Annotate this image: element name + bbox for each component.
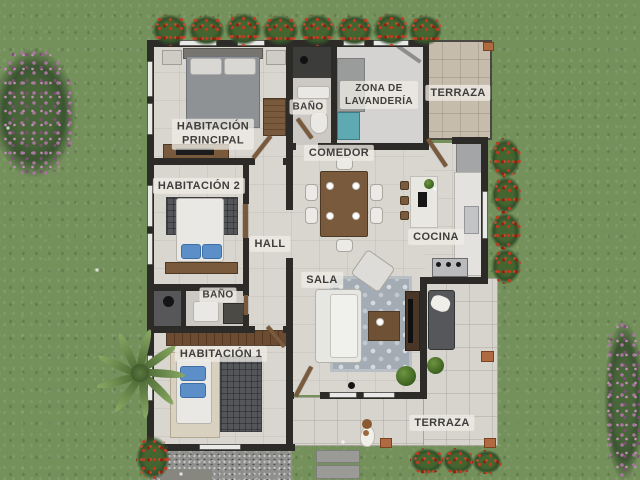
bar-stool xyxy=(400,181,409,190)
sparkle xyxy=(341,440,345,444)
sparkle xyxy=(179,472,183,476)
door-mat xyxy=(160,469,212,480)
purple-flower-bush xyxy=(604,320,640,480)
red-flower-bush xyxy=(491,248,521,284)
window xyxy=(200,445,240,449)
stove xyxy=(432,258,468,277)
floor-closet-dark xyxy=(152,288,182,328)
window xyxy=(483,192,487,238)
window xyxy=(330,393,356,397)
door-bed2 xyxy=(243,204,248,238)
dining-chair xyxy=(305,184,318,201)
label-habitacion-principal: HABITACIÓN PRINCIPAL xyxy=(172,119,254,150)
bed-bench xyxy=(165,262,238,274)
wall-sala-east xyxy=(420,277,427,399)
wall-kitchen-south xyxy=(423,277,488,284)
red-flower-bush xyxy=(491,176,521,214)
label-habitacion-2: HABITACIÓN 2 xyxy=(153,178,245,194)
sparkle xyxy=(95,268,99,272)
wall-bath-south-stub xyxy=(286,143,296,150)
red-flower-bush xyxy=(262,15,299,46)
terracotta-pot xyxy=(380,438,392,448)
window xyxy=(148,62,152,96)
bar-stool xyxy=(400,196,409,205)
wall-sala-south-stub xyxy=(286,392,294,399)
place-setting xyxy=(352,212,360,220)
place-setting xyxy=(352,182,360,190)
floor-lamp xyxy=(348,382,355,389)
dining-chair xyxy=(305,207,318,224)
label-zona-lavanderia: ZONA DE LAVANDERÍA xyxy=(340,81,418,109)
red-flower-bush xyxy=(225,13,262,46)
terracotta-pot xyxy=(481,351,494,362)
shower-head xyxy=(300,56,308,64)
label-bano-top: BAÑO xyxy=(289,100,326,115)
place-setting xyxy=(326,182,334,190)
terracotta-pot xyxy=(484,438,496,448)
palm-tree xyxy=(94,327,186,419)
label-cocina: COCINA xyxy=(408,229,464,245)
stepping-stone xyxy=(316,465,360,479)
tv xyxy=(408,299,413,343)
dog-spot xyxy=(363,430,369,436)
label-bano-lower: BAÑO xyxy=(199,288,236,303)
window xyxy=(148,104,152,134)
floor-lamp xyxy=(163,296,174,307)
sparkle xyxy=(433,187,437,191)
red-flower-bush xyxy=(472,450,502,474)
coffee-table xyxy=(368,311,400,341)
red-flower-bush xyxy=(299,14,336,46)
red-flower-bush xyxy=(490,138,521,178)
red-flower-bush xyxy=(442,448,474,474)
burner xyxy=(446,262,451,267)
wall-master-south-stub xyxy=(283,158,293,165)
palm-crown xyxy=(131,364,149,382)
stepping-stone xyxy=(316,450,360,463)
terracotta-pot xyxy=(483,42,494,51)
window xyxy=(148,234,152,264)
island-cooktop xyxy=(418,192,427,207)
label-terraza-top: TERRAZA xyxy=(425,85,490,101)
label-hall: HALL xyxy=(250,236,291,252)
dining-chair xyxy=(336,239,353,252)
shower xyxy=(290,46,333,78)
door-bath-lower xyxy=(244,295,248,315)
label-terraza-bottom: TERRAZA xyxy=(409,415,474,431)
closet xyxy=(263,98,286,136)
red-flower-bush xyxy=(408,15,442,46)
washing-machine xyxy=(337,112,360,140)
window xyxy=(148,186,152,226)
red-flower-bush xyxy=(188,15,225,46)
red-flower-bush xyxy=(490,212,521,250)
sparkle xyxy=(6,126,10,130)
kitchen-sink xyxy=(464,206,479,234)
pillow-blue xyxy=(181,244,201,259)
sofa-cushions xyxy=(330,294,358,358)
wall-bed1-north-stub xyxy=(283,326,293,333)
label-habitacion-1: HABITACIÓN 1 xyxy=(175,346,267,362)
label-sala: SALA xyxy=(301,272,343,288)
floor-plan-render: HABITACIÓN PRINCIPAL BAÑO ZONA DE LAVAND… xyxy=(0,0,640,480)
pillow xyxy=(224,58,256,75)
burner xyxy=(456,262,461,267)
nightstand xyxy=(266,50,286,65)
place-setting xyxy=(326,212,334,220)
bar-stool xyxy=(400,211,409,220)
dining-chair xyxy=(370,184,383,201)
pillow xyxy=(190,58,222,75)
label-comedor: COMEDOR xyxy=(304,145,374,161)
dining-table xyxy=(320,171,368,237)
wall-closet-divider xyxy=(181,291,186,328)
red-flower-bush xyxy=(136,436,170,480)
red-flower-bush xyxy=(152,14,188,46)
bath-sink xyxy=(297,86,330,99)
wall-bath-laundry xyxy=(331,40,337,149)
red-flower-bush xyxy=(336,15,373,46)
bath-sink xyxy=(193,301,219,322)
topiary-plant xyxy=(427,357,444,374)
window xyxy=(364,393,394,397)
toilet xyxy=(310,112,328,134)
topiary-plant xyxy=(396,366,416,386)
red-flower-bush xyxy=(373,13,409,46)
cup xyxy=(376,318,384,326)
wall-hall-upper xyxy=(286,40,293,210)
wall-master-south xyxy=(147,158,255,165)
dog-head xyxy=(362,419,372,429)
nightstand xyxy=(162,50,182,65)
red-flower-bush xyxy=(410,448,444,474)
rug xyxy=(220,356,262,432)
burner xyxy=(436,262,441,267)
pillow-blue xyxy=(202,244,222,259)
wall-bed2-east-b xyxy=(243,238,249,290)
dining-chair xyxy=(370,207,383,224)
wall-hall-lower xyxy=(286,258,293,332)
